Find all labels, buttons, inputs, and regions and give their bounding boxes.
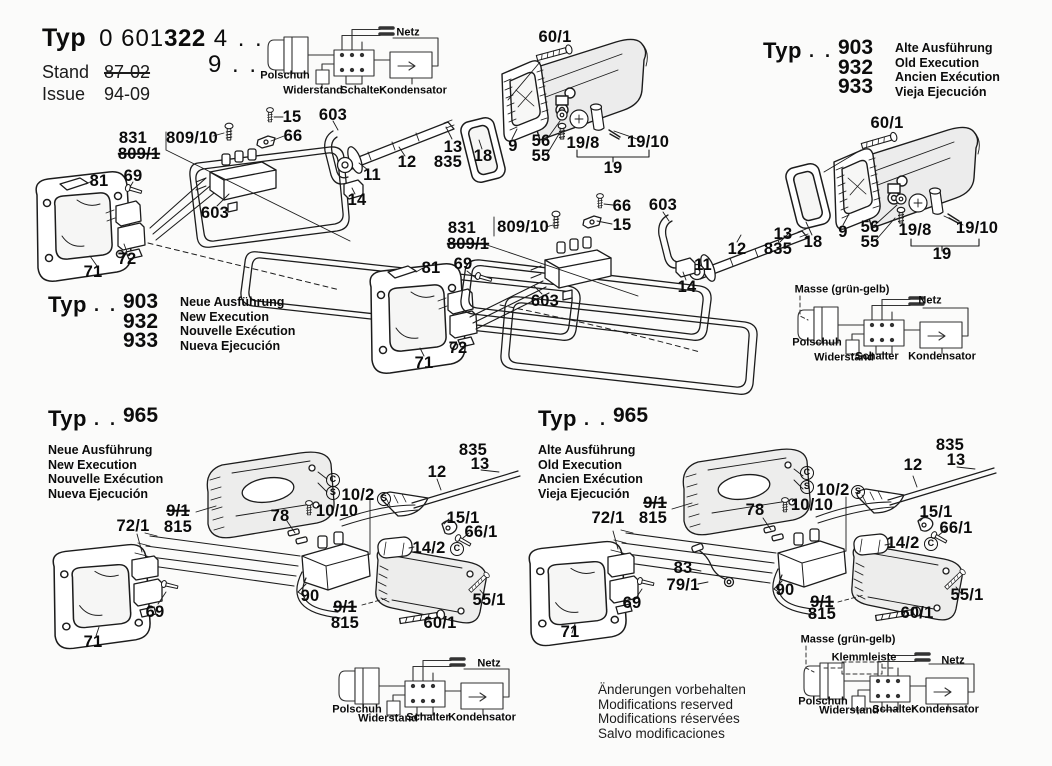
note-line: Modifications réservées (598, 712, 746, 727)
type-block: Typ. .903932933Alte AusführungOld Execut… (763, 38, 1000, 99)
wiring-label: Kondensator (448, 713, 516, 724)
part-label: 78 (271, 508, 290, 525)
type-block-dots: . . (94, 409, 118, 430)
wiring-label: Schalter (340, 86, 383, 97)
part-label: 60/1 (901, 605, 934, 622)
type-block-dots: . . (809, 41, 833, 62)
part-label: 815 (639, 510, 667, 527)
revision-notes: Änderungen vorbehaltenModifications rese… (598, 683, 746, 741)
part-label: 809/10 (497, 219, 549, 236)
part-label: 10/10 (316, 503, 358, 520)
part-label: 809/1 (118, 146, 160, 163)
wiring-label: Kondensator (379, 86, 447, 97)
type-block: Typ. .965Alte AusführungOld ExecutionAnc… (538, 406, 648, 501)
part-label: 19/8 (567, 135, 600, 152)
type-block-typ: Typ (538, 406, 577, 432)
type-number: 965 (613, 404, 648, 427)
wiring-label: Netz (477, 659, 500, 670)
part-label: 69 (124, 168, 143, 185)
execution-label: Vieja Ejecución (538, 487, 629, 501)
part-label: 71 (561, 624, 580, 641)
stand-value-struck: 87-02 (104, 62, 150, 82)
execution-labels: Alte AusführungOld ExecutionAncien Exécu… (538, 443, 648, 501)
part-label: 603 (649, 197, 677, 214)
part-label: 809/1 (447, 236, 489, 253)
execution-label: Neue Ausführung (180, 295, 284, 309)
type-number: 933 (123, 329, 158, 352)
part-label: 14/2 (413, 540, 446, 557)
type-block: Typ. .903932933Neue AusführungNew Execut… (48, 292, 295, 353)
part-label: 815 (808, 606, 836, 623)
part-label: 66/1 (940, 520, 973, 537)
execution-label: Nueva Ejecución (180, 339, 280, 353)
type-block-dots: . . (94, 295, 118, 316)
execution-label: Ancien Exécution (538, 472, 643, 486)
execution-label: Old Execution (538, 458, 622, 472)
part-label: 13 (947, 452, 966, 469)
execution-labels: Alte AusführungOld ExecutionAncien Exécu… (895, 38, 1000, 99)
execution-label: New Execution (48, 458, 137, 472)
type-block-dots: . . (584, 409, 608, 430)
typ-label: Typ (42, 24, 86, 52)
part-label: 14 (348, 192, 367, 209)
type-numbers: 965 (613, 406, 648, 426)
type-block-typ: Typ (48, 406, 87, 432)
part-label: 90 (301, 588, 320, 605)
part-label: 815 (331, 615, 359, 632)
part-label: 18 (804, 234, 823, 251)
part-label: 835 (434, 154, 462, 171)
part-label: 69 (454, 256, 473, 273)
issue-value: 94-09 (104, 84, 150, 104)
part-label: 12 (398, 154, 417, 171)
part-label: 60/1 (871, 115, 904, 132)
part-label: 83 (674, 560, 693, 577)
part-label: 18 (474, 148, 493, 165)
type-block-typ: Typ (48, 292, 87, 318)
note-line: Salvo modificaciones (598, 727, 746, 742)
wiring-label: Polschuh (792, 338, 842, 349)
part-label: 72 (449, 340, 468, 357)
part-label: 12 (428, 464, 447, 481)
part-label: 603 (531, 293, 559, 310)
type-code-bold: 322 (164, 25, 206, 52)
part-label: 66 (613, 198, 632, 215)
wiring-label: Schalter (872, 705, 915, 716)
part-label: 71 (415, 355, 434, 372)
part-label: 66 (284, 128, 303, 145)
connection-mark: C (800, 466, 814, 480)
part-label: 72/1 (592, 510, 625, 527)
wiring-label: Schalter (406, 713, 449, 724)
part-label: 809/10 (166, 130, 218, 147)
part-label: 19/10 (627, 134, 669, 151)
note-line: Änderungen vorbehalten (598, 683, 746, 698)
execution-label: Nouvelle Exécution (180, 324, 295, 338)
part-label: 71 (84, 634, 103, 651)
connection-mark: C (326, 473, 340, 487)
wiring-label: Masse (grün-gelb) (795, 285, 890, 296)
part-label: 15 (283, 109, 302, 126)
connection-mark: C (450, 542, 464, 556)
part-label: 9 (838, 224, 847, 241)
type-code-suffix: 4 . . (214, 25, 264, 52)
wiring-label: Klemmleiste (832, 653, 897, 664)
wiring-label: Polschuh (260, 71, 310, 82)
part-label: 835 (764, 241, 792, 258)
execution-label: Nueva Ejecución (48, 487, 148, 501)
part-label: 12 (904, 457, 923, 474)
parts-diagram-page: Typ0 6013224 . . 9 . . Stand87-02 Issue9… (0, 0, 1052, 766)
execution-label: Ancien Exécution (895, 70, 1000, 84)
part-label: 72 (118, 251, 137, 268)
part-label: 55 (861, 234, 880, 251)
part-label: 19/8 (899, 222, 932, 239)
connection-mark: S (800, 480, 814, 494)
type-numbers: 903932933 (123, 292, 158, 351)
part-label: 55/1 (473, 592, 506, 609)
part-label: 14 (678, 279, 697, 296)
execution-label: Alte Ausführung (538, 443, 635, 457)
connection-mark: C (924, 537, 938, 551)
type-code-line2: 9 . . (208, 51, 258, 79)
part-label: 14/2 (887, 535, 920, 552)
type-code-prefix: 0 601 (99, 25, 164, 52)
execution-label: Old Execution (895, 56, 979, 70)
part-label: 69 (623, 595, 642, 612)
connection-mark: S (377, 492, 391, 506)
part-label: 11 (363, 167, 381, 184)
stand-label: Stand (42, 62, 104, 83)
execution-label: Neue Ausführung (48, 443, 152, 457)
part-label: 55 (532, 148, 551, 165)
wiring-label: Netz (941, 656, 964, 667)
wiring-label: Schalter (855, 352, 898, 363)
part-label: 19/10 (956, 220, 998, 237)
type-number: 965 (123, 404, 158, 427)
part-label: 815 (164, 519, 192, 536)
type-numbers: 903932933 (838, 38, 873, 97)
part-label: 72/1 (117, 518, 150, 535)
wiring-schematic-middle-right (798, 298, 968, 358)
execution-labels: Neue AusführungNew ExecutionNouvelle Exé… (180, 292, 295, 353)
part-label: 60/1 (539, 29, 572, 46)
part-label: 603 (201, 205, 229, 222)
part-label: 9 (508, 138, 517, 155)
wiring-label: Widerstand (819, 706, 879, 717)
execution-label: New Execution (180, 310, 269, 324)
part-label: 71 (84, 264, 103, 281)
part-label: 13 (471, 456, 490, 473)
part-label: 81 (422, 260, 441, 277)
part-label: 15 (613, 217, 632, 234)
wiring-label: Widerstand (283, 86, 343, 97)
wiring-label: Kondensator (908, 352, 976, 363)
wiring-label: Netz (396, 28, 419, 39)
wiring-label: Kondensator (911, 705, 979, 716)
connection-mark: S (326, 486, 340, 500)
part-label: 90 (776, 582, 795, 599)
execution-label: Alte Ausführung (895, 41, 992, 55)
part-label: 78 (746, 502, 765, 519)
type-numbers: 965 (123, 406, 158, 426)
part-label: 19 (933, 246, 952, 263)
type-code-line: Typ0 6013224 . . (42, 24, 264, 53)
part-label: 603 (319, 107, 347, 124)
part-label: 11 (694, 257, 712, 274)
part-label: 66/1 (465, 524, 498, 541)
wiring-label: Netz (918, 296, 941, 307)
part-label: 81 (90, 173, 109, 190)
stand-line: Stand87-02 (42, 62, 150, 83)
type-block-typ: Typ (763, 38, 802, 64)
part-label: 10/10 (791, 497, 833, 514)
part-label: 79/1 (667, 577, 700, 594)
part-label: 12 (728, 241, 747, 258)
execution-labels: Neue AusführungNew ExecutionNouvelle Exé… (48, 443, 163, 501)
execution-label: Nouvelle Exécution (48, 472, 163, 486)
part-label: 60/1 (424, 615, 457, 632)
part-label: 69 (146, 604, 165, 621)
issue-line: Issue94-09 (42, 84, 150, 105)
execution-label: Vieja Ejecución (895, 85, 986, 99)
connection-mark: S (851, 485, 865, 499)
type-block: Typ. .965Neue AusführungNew ExecutionNou… (48, 406, 163, 501)
part-label: 55/1 (951, 587, 984, 604)
wiring-label: Masse (grün-gelb) (801, 635, 896, 646)
note-line: Modifications reserved (598, 698, 746, 713)
issue-label: Issue (42, 84, 104, 105)
part-label: 19 (604, 160, 623, 177)
type-number: 933 (838, 75, 873, 98)
